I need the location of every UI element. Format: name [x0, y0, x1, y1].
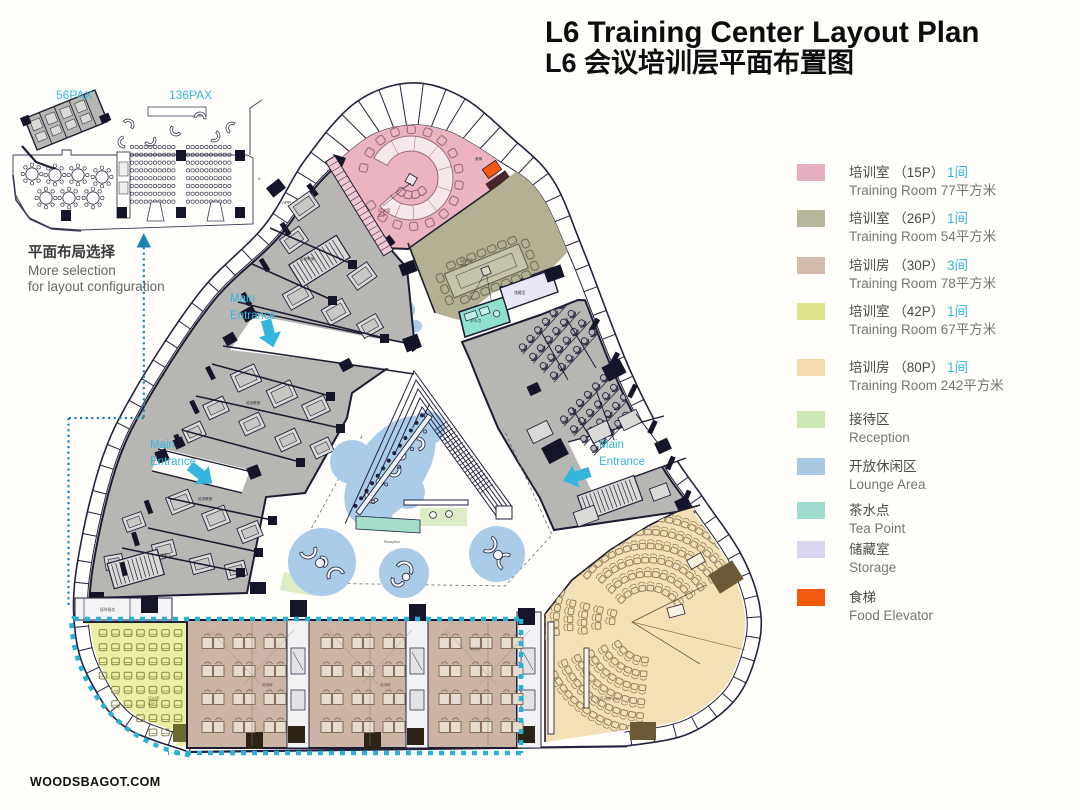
svg-text:培训房 （80P）: 培训房 （80P） — [849, 360, 944, 375]
svg-text:Food Elevator: Food Elevator — [849, 608, 934, 623]
svg-text:培训教室: 培训教室 — [198, 496, 213, 501]
svg-text:15P: 15P — [378, 213, 386, 218]
svg-text:Training Room 242平方米: Training Room 242平方米 — [849, 378, 1004, 393]
svg-text:培训教室: 培训教室 — [246, 400, 261, 405]
svg-text:培训房: 培训房 — [470, 646, 481, 651]
svg-text:1间: 1间 — [947, 211, 968, 226]
svg-text:培训室 （42P）: 培训室 （42P） — [849, 303, 944, 319]
svg-text:Tea Point: Tea Point — [849, 521, 906, 536]
svg-text:Training Room 54平方米: Training Room 54平方米 — [849, 229, 997, 244]
svg-text:Entrance: Entrance — [599, 456, 645, 468]
svg-text:Reception: Reception — [384, 540, 400, 544]
svg-text:L6 会议培训层平面布置图: L6 会议培训层平面布置图 — [545, 48, 854, 78]
svg-text:茶水点: 茶水点 — [470, 318, 482, 323]
svg-text:Entrance: Entrance — [150, 456, 196, 468]
svg-text:培训教室: 培训教室 — [300, 256, 315, 261]
svg-text:Main: Main — [599, 439, 624, 451]
svg-text:储藏室: 储藏室 — [514, 290, 526, 295]
svg-text:Reception: Reception — [849, 430, 910, 445]
svg-text:for layout configuration: for layout configuration — [28, 279, 165, 294]
svg-text:1间: 1间 — [947, 360, 968, 375]
svg-text:3间: 3间 — [947, 258, 968, 273]
svg-text:食梯: 食梯 — [849, 589, 876, 605]
svg-text:42P: 42P — [148, 702, 155, 706]
svg-text:Main: Main — [230, 293, 255, 305]
svg-text:Main: Main — [150, 439, 175, 451]
svg-text:26P: 26P — [460, 263, 468, 268]
svg-text:More selection: More selection — [28, 263, 116, 278]
svg-text:培训室: 培训室 — [148, 696, 160, 701]
svg-text:食梯: 食梯 — [475, 156, 483, 161]
svg-text:休息厅: 休息厅 — [160, 552, 171, 557]
svg-text:WOODSBAGOT.COM: WOODSBAGOT.COM — [30, 775, 161, 789]
svg-text:136PAX: 136PAX — [169, 88, 212, 102]
svg-text:1间: 1间 — [947, 304, 968, 319]
svg-text:Lounge Area: Lounge Area — [849, 477, 926, 492]
svg-text:1间: 1间 — [947, 165, 968, 180]
svg-text:平面布局选择: 平面布局选择 — [28, 243, 115, 261]
svg-text:Training Room 67平方米: Training Room 67平方米 — [849, 322, 997, 337]
svg-text:储藏室: 储藏室 — [849, 541, 890, 557]
svg-text:APP: APP — [282, 200, 291, 205]
svg-text:Training Room 78平方米: Training Room 78平方米 — [849, 276, 997, 291]
svg-text:L6 Training Center Layout Plan: L6 Training Center Layout Plan — [545, 16, 979, 49]
svg-text:Training Room 77平方米: Training Room 77平方米 — [849, 183, 997, 198]
svg-text:Storage: Storage — [849, 560, 896, 575]
svg-text:开放休闲区: 开放休闲区 — [849, 459, 917, 474]
svg-text:茶水点: 茶水点 — [849, 503, 890, 518]
svg-text:培训房 （30P）: 培训房 （30P） — [849, 258, 944, 273]
svg-text:培训房: 培训房 — [380, 682, 391, 687]
svg-text:56PAX: 56PAX — [56, 88, 92, 102]
svg-text:大培训房 80P: 大培训房 80P — [596, 696, 619, 701]
svg-text:培训房: 培训房 — [262, 682, 273, 687]
svg-text:培训室 （15P）: 培训室 （15P） — [849, 164, 944, 180]
svg-text:培训室 （26P）: 培训室 （26P） — [849, 210, 944, 226]
svg-text:接待区: 接待区 — [849, 411, 890, 427]
svg-text:接待服务: 接待服务 — [100, 607, 115, 612]
